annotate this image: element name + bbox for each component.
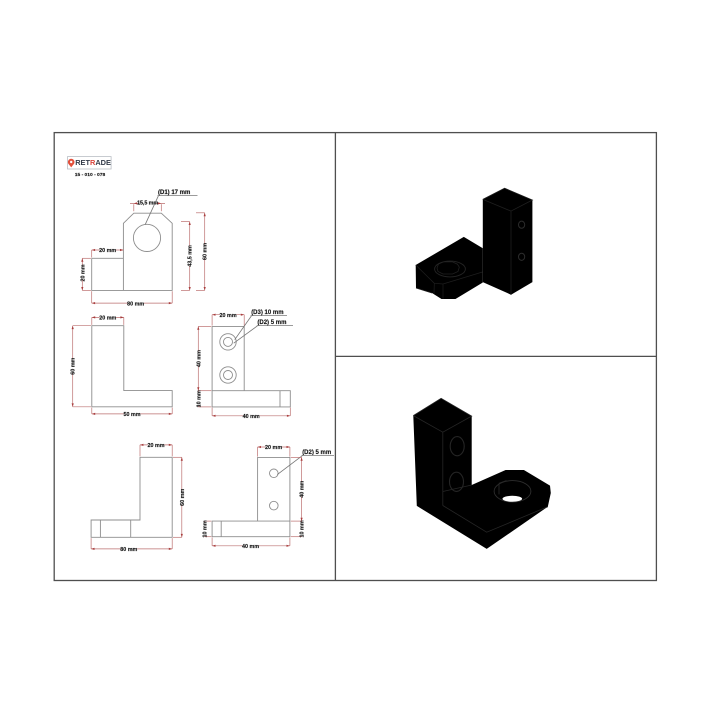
svg-text:40 mm: 40 mm xyxy=(242,544,259,550)
svg-text:80 mm: 80 mm xyxy=(120,547,137,553)
svg-text:20 mm: 20 mm xyxy=(99,316,116,322)
svg-text:50 mm: 50 mm xyxy=(123,412,140,418)
svg-text:40 mm: 40 mm xyxy=(243,414,260,420)
svg-text:(D2) 5 mm: (D2) 5 mm xyxy=(302,450,331,456)
svg-text:60 mm: 60 mm xyxy=(203,243,209,260)
svg-text:40 mm: 40 mm xyxy=(300,480,306,497)
svg-text:40 mm: 40 mm xyxy=(196,350,202,367)
svg-text:20 mm: 20 mm xyxy=(265,445,282,451)
svg-text:80 mm: 80 mm xyxy=(127,301,144,307)
svg-text:20 mm: 20 mm xyxy=(80,264,86,281)
svg-text:10 mm: 10 mm xyxy=(300,520,306,537)
svg-text:(D1) 17 mm: (D1) 17 mm xyxy=(158,190,190,196)
svg-text:10 mm: 10 mm xyxy=(196,390,202,407)
svg-text:20 mm: 20 mm xyxy=(99,248,116,254)
svg-text:43,5 mm: 43,5 mm xyxy=(188,245,194,267)
svg-text:60 mm: 60 mm xyxy=(71,357,77,374)
svg-text:15 - 010 - 078: 15 - 010 - 078 xyxy=(75,172,106,178)
svg-text:20 mm: 20 mm xyxy=(147,443,164,449)
svg-text:60 mm: 60 mm xyxy=(180,489,186,506)
svg-text:RETRADE: RETRADE xyxy=(75,158,111,167)
svg-text:(D2) 5 mm: (D2) 5 mm xyxy=(257,320,286,326)
svg-text:20 mm: 20 mm xyxy=(220,313,237,319)
svg-text:10 mm: 10 mm xyxy=(203,520,209,537)
svg-text:(D3) 10 mm: (D3) 10 mm xyxy=(251,310,283,316)
